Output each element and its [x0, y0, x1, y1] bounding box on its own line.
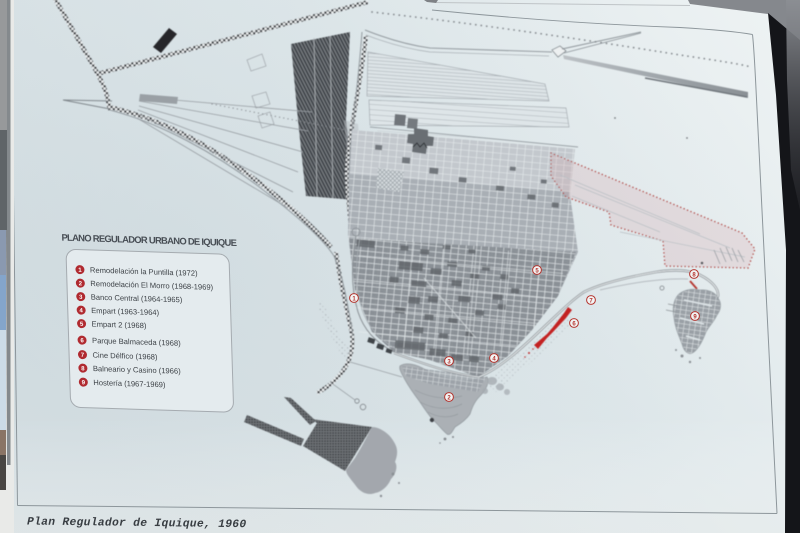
svg-text:Empart 2 (1968): Empart 2 (1968)	[91, 320, 147, 331]
